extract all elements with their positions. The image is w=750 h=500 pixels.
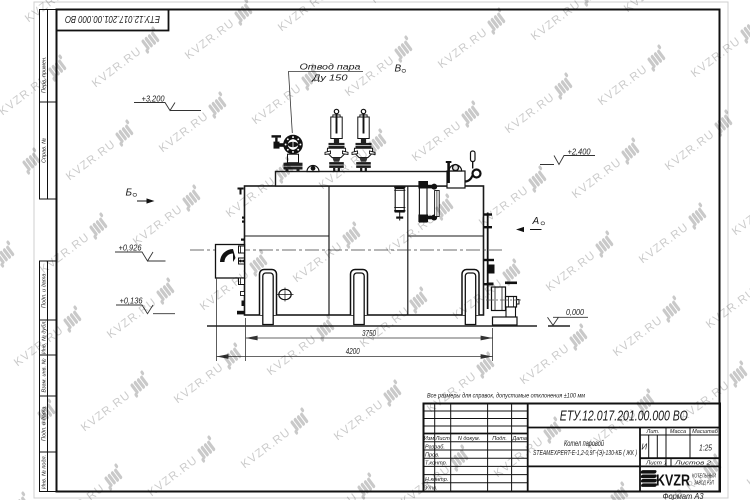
svg-text:Разраб.: Разраб.	[425, 444, 445, 450]
svg-text:STEAMEXPERT-Е-1,2-0,9Г-(Э)-130: STEAMEXPERT-Е-1,2-0,9Г-(Э)-130-КБ ( ЖК )	[533, 450, 637, 457]
svg-text:KVZR.RU: KVZR.RU	[745, 444, 750, 489]
svg-text:KVZR.RU: KVZR.RU	[410, 119, 464, 164]
svg-text:KVZR.RU: KVZR.RU	[131, 203, 185, 248]
svg-text:KVZR.RU: KVZR.RU	[730, 193, 750, 238]
svg-text:KVZR.RU: KVZR.RU	[276, 0, 330, 34]
svg-text:KVZR.RU: KVZR.RU	[544, 249, 598, 294]
svg-text:Масштаб: Масштаб	[692, 429, 719, 435]
svg-text:KVZR.RU: KVZR.RU	[157, 110, 211, 155]
svg-text:KVZR.RU: KVZR.RU	[436, 26, 490, 71]
svg-text:4200: 4200	[346, 347, 360, 356]
svg-text:Листов 2: Листов 2	[674, 461, 711, 467]
svg-text:KVZR.RU: KVZR.RU	[265, 333, 319, 378]
svg-text:KVZR.RU: KVZR.RU	[570, 156, 624, 201]
svg-text:KVZR.RU: KVZR.RU	[79, 389, 133, 434]
svg-text:KVZR.RU: KVZR.RU	[611, 314, 665, 359]
svg-text:KVZR.RU: KVZR.RU	[369, 0, 423, 6]
svg-text:KVZR.RU: KVZR.RU	[332, 398, 386, 443]
svg-text:KVZR.RU: KVZR.RU	[678, 379, 732, 424]
svg-text:Лист: Лист	[435, 436, 451, 442]
svg-text:0,000: 0,000	[566, 308, 584, 317]
svg-text:KVZR.RU: KVZR.RU	[250, 82, 304, 127]
svg-text:Взам. инв. №: Взам. инв. №	[42, 358, 48, 392]
svg-text:+0,136: +0,136	[120, 296, 144, 305]
svg-text:KVZR.RU: KVZR.RU	[224, 175, 278, 220]
svg-text:KVZR.RU: KVZR.RU	[291, 240, 345, 285]
svg-text:KVZR.RU: KVZR.RU	[38, 231, 92, 276]
svg-text:А: А	[532, 216, 540, 227]
svg-text:KVZR.RU: KVZR.RU	[90, 45, 144, 90]
svg-text:+3,200: +3,200	[142, 94, 166, 103]
svg-text:Дата: Дата	[511, 436, 527, 442]
svg-text:Лит.: Лит.	[646, 429, 660, 435]
svg-text:KVZR.RU: KVZR.RU	[0, 73, 51, 118]
svg-text:KVZR.RU: KVZR.RU	[172, 361, 226, 406]
svg-text:KVZR.RU: KVZR.RU	[503, 91, 557, 136]
svg-text:KVZR.RU: KVZR.RU	[663, 128, 717, 173]
svg-text:И: И	[641, 443, 647, 452]
svg-text:KVZR.RU: KVZR.RU	[477, 184, 531, 229]
svg-text:Подп.: Подп.	[492, 436, 507, 442]
svg-text:В: В	[395, 64, 402, 75]
svg-text:Отвод пара: Отвод пара	[300, 62, 361, 72]
svg-text:+2,400: +2,400	[568, 147, 592, 156]
svg-text:KVZR.RU: KVZR.RU	[529, 0, 583, 43]
svg-text:KVZR.RU: KVZR.RU	[183, 17, 237, 62]
svg-text:KVZR.RU: KVZR.RU	[596, 63, 650, 108]
svg-text:KVZR.RU: KVZR.RU	[239, 426, 293, 471]
svg-text:Справ. №: Справ. №	[42, 138, 48, 163]
svg-text:KVZR.RU: KVZR.RU	[689, 35, 743, 80]
svg-text:Инв. № подл.: Инв. № подл.	[42, 455, 48, 489]
svg-text:ЕТУ.12.017.201.00.000 ВО: ЕТУ.12.017.201.00.000 ВО	[65, 13, 160, 25]
svg-text:Подп. и дата: Подп. и дата	[42, 274, 48, 308]
svg-text:Б: Б	[126, 188, 133, 199]
svg-text:1:25: 1:25	[699, 444, 712, 453]
svg-text:Лист 1: Лист 1	[645, 461, 667, 467]
svg-text:N докум.: N докум.	[458, 436, 480, 442]
svg-text:Пров.: Пров.	[425, 453, 440, 459]
svg-text:KVZR.RU: KVZR.RU	[518, 342, 572, 387]
svg-text:Масса: Масса	[670, 429, 686, 435]
svg-text:Изм: Изм	[424, 436, 434, 442]
svg-text:KVZR.RU: KVZR.RU	[704, 286, 750, 331]
svg-text:KVZR.RU: KVZR.RU	[64, 138, 118, 183]
svg-text:KVZR.RU: KVZR.RU	[637, 221, 691, 266]
